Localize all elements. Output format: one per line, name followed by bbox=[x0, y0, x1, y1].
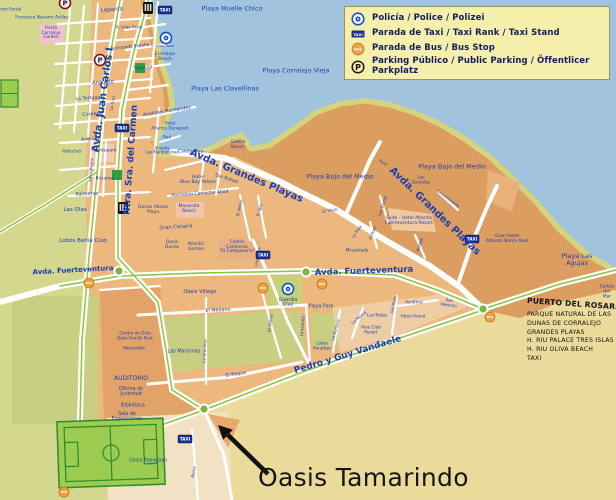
exit-heading: PUERTO DEL ROSARIO bbox=[527, 296, 616, 312]
football-field bbox=[57, 418, 165, 488]
exit-list-item: DUNAS DE CORRALEJO bbox=[527, 320, 616, 329]
legend-item-label: Parada de Taxi / Taxi Rank / Taxi Stand bbox=[372, 28, 560, 38]
legend-item-label: Policía / Police / Polizei bbox=[372, 13, 484, 23]
oasis-tamarindo-callout: Oasis Tamarindo bbox=[258, 463, 469, 492]
corralejo-map: TAXI BUS P bbox=[0, 0, 616, 500]
exit-list-item: H. RIU PALACE TRES ISLAS bbox=[527, 337, 616, 346]
exit-list-item: TAXI bbox=[527, 355, 616, 364]
parking-icon: P bbox=[351, 59, 365, 73]
exit-heading-text: PUERTO DEL ROSARIO bbox=[527, 296, 616, 312]
legend: Policía / Police / PolizeiTAXIParada de … bbox=[344, 6, 610, 80]
legend-item-parking: PParking Público / Public Parking / Öffe… bbox=[351, 56, 603, 76]
taxi-icon: TAXI bbox=[351, 26, 365, 40]
svg-text:TAXI: TAXI bbox=[353, 32, 363, 37]
svg-text:BUS: BUS bbox=[354, 47, 362, 51]
bus-icon: BUS bbox=[351, 41, 365, 55]
police-icon bbox=[351, 11, 365, 25]
legend-item-police: Policía / Police / Polizei bbox=[351, 11, 603, 25]
exit-list-item: H. RIU OLIVA BEACH bbox=[527, 346, 616, 355]
legend-item-taxi: TAXIParada de Taxi / Taxi Rank / Taxi St… bbox=[351, 26, 603, 40]
exit-list: PARQUE NATURAL DE LASDUNAS DE CORRALEJOG… bbox=[527, 311, 616, 364]
svg-text:P: P bbox=[355, 63, 361, 72]
exit-list-item: PARQUE NATURAL DE LAS bbox=[527, 311, 616, 320]
legend-item-label: Parada de Bus / Bus Stop bbox=[372, 43, 495, 53]
exit-list-item: GRANDES PLAYAS bbox=[527, 329, 616, 338]
legend-item-label: Parking Público / Public Parking / Öffen… bbox=[372, 56, 603, 76]
small-field bbox=[1, 80, 18, 107]
legend-item-bus: BUSParada de Bus / Bus Stop bbox=[351, 41, 603, 55]
exit-destinations: PUERTO DEL ROSARIO PARQUE NATURAL DE LAS… bbox=[527, 296, 616, 364]
